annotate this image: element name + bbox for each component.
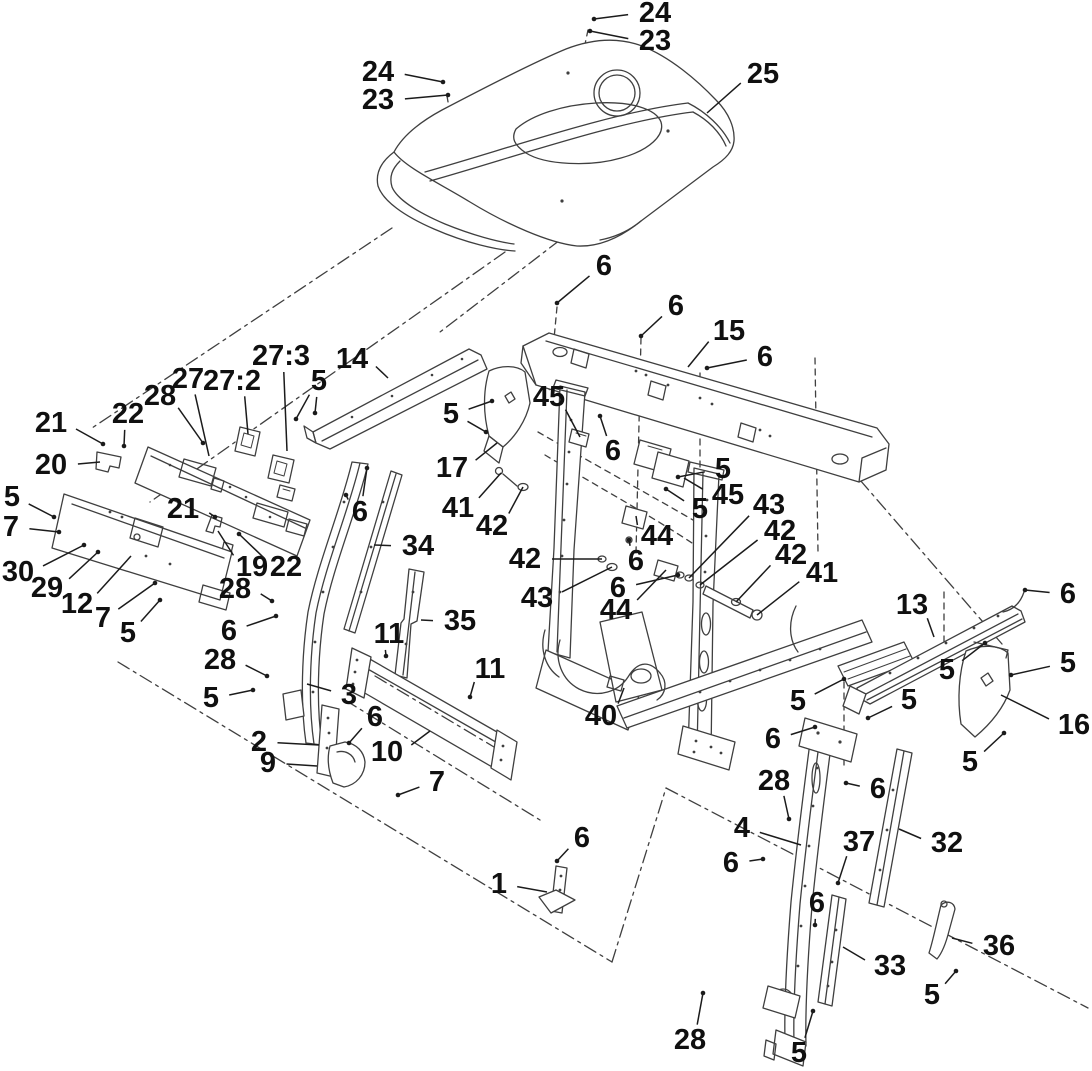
circle-detail bbox=[835, 929, 838, 932]
callout-label-21-40: 21 bbox=[167, 493, 199, 525]
callout-label-33-82: 33 bbox=[874, 950, 906, 982]
lever-outline bbox=[929, 902, 955, 959]
bracket-part-17 bbox=[485, 367, 531, 447]
leader-line-41 bbox=[479, 473, 501, 498]
callout-label-21-16: 21 bbox=[35, 407, 67, 439]
diagram-page: 2423242325661561427:352727:2282221204551… bbox=[0, 0, 1092, 1071]
leader-line-5 bbox=[315, 397, 317, 413]
fastener-dot-30 bbox=[82, 543, 87, 548]
leader-line-23 bbox=[405, 95, 448, 99]
callout-label-3-59: 3 bbox=[341, 679, 357, 711]
circle-detail bbox=[391, 395, 394, 398]
alignment-line bbox=[860, 480, 1002, 644]
fastener-dot-28 bbox=[701, 991, 706, 996]
callout-label-28-14: 28 bbox=[144, 380, 176, 412]
circle-detail bbox=[360, 591, 363, 594]
hood-hole bbox=[566, 71, 569, 74]
circle-detail bbox=[312, 691, 315, 694]
fastener-dot-28 bbox=[265, 674, 270, 679]
callout-label-6-66: 6 bbox=[574, 822, 590, 854]
fastener-dot-6 bbox=[844, 781, 849, 786]
callout-label-5-70: 5 bbox=[1060, 647, 1076, 679]
fastener-dot-6 bbox=[274, 614, 279, 619]
leader-line-23 bbox=[590, 31, 628, 39]
callout-label-17-20: 17 bbox=[436, 452, 468, 484]
circle-detail bbox=[704, 571, 707, 574]
fastener-dot-6 bbox=[813, 923, 818, 928]
callout-label-6-80: 6 bbox=[809, 887, 825, 919]
circle-detail bbox=[229, 486, 232, 489]
circle-detail bbox=[328, 732, 331, 735]
circle-detail bbox=[889, 672, 892, 675]
circle-detail bbox=[720, 752, 723, 755]
angle-bracket bbox=[652, 452, 689, 487]
callout-label-7-44: 7 bbox=[3, 511, 19, 543]
fastener-dot-28 bbox=[270, 599, 275, 604]
callout-label-25-4: 25 bbox=[747, 58, 779, 90]
circle-detail bbox=[500, 759, 503, 762]
fastener-dot-6 bbox=[1023, 588, 1028, 593]
circle-detail bbox=[693, 751, 696, 754]
circle-detail bbox=[804, 885, 807, 888]
callout-label-45-25: 45 bbox=[712, 479, 744, 511]
callout-label-11-58: 11 bbox=[475, 653, 506, 685]
circle-detail bbox=[816, 767, 819, 770]
circle-detail bbox=[559, 591, 562, 594]
hood-hole bbox=[560, 199, 563, 202]
callout-label-4-76: 4 bbox=[734, 812, 750, 844]
fastener-dot-6 bbox=[598, 414, 603, 419]
callout-label-36-81: 36 bbox=[983, 930, 1015, 962]
fastener-dot-5 bbox=[52, 515, 57, 520]
leader-line-5 bbox=[945, 971, 956, 984]
circle-detail bbox=[917, 657, 920, 660]
circle-detail bbox=[886, 829, 889, 832]
callout-label-16-72: 16 bbox=[1058, 709, 1090, 741]
leader-line-7 bbox=[29, 529, 59, 532]
leader-line-36 bbox=[952, 938, 972, 943]
fastener-dot-5 bbox=[811, 1009, 816, 1014]
leader-line-6 bbox=[600, 416, 607, 436]
circle-detail bbox=[502, 745, 505, 748]
callout-label-28-52: 28 bbox=[204, 644, 236, 676]
leader-line-6 bbox=[707, 360, 747, 368]
leader-line-35 bbox=[421, 620, 433, 621]
callout-label-37-77: 37 bbox=[843, 826, 875, 858]
circle-detail bbox=[635, 370, 638, 373]
circle-detail bbox=[566, 483, 569, 486]
circle-detail bbox=[827, 985, 830, 988]
circle-detail bbox=[812, 805, 815, 808]
circle-detail bbox=[997, 615, 1000, 618]
fastener-dot-6 bbox=[347, 741, 352, 746]
circle-detail bbox=[121, 516, 124, 519]
fastener-dot-21 bbox=[101, 442, 106, 447]
fastener-dot-6 bbox=[365, 466, 370, 471]
left-post bbox=[548, 386, 585, 658]
callout-label-42-22: 42 bbox=[476, 510, 508, 542]
fastener-dot-6 bbox=[555, 301, 560, 306]
circle-detail bbox=[816, 731, 819, 734]
fastener-dot-5 bbox=[251, 688, 256, 693]
callout-label-1-65: 1 bbox=[491, 868, 507, 900]
leader-line-13 bbox=[927, 618, 934, 637]
rail-part-14 bbox=[304, 349, 487, 449]
fastener-dot-5 bbox=[664, 487, 669, 492]
callout-label-22-42: 22 bbox=[270, 551, 302, 583]
fastener-dot-28 bbox=[787, 817, 792, 822]
leader-line-28 bbox=[246, 665, 267, 676]
fastener-dot-5 bbox=[842, 677, 847, 682]
callout-label-6-79: 6 bbox=[723, 847, 739, 879]
callout-label-5-26: 5 bbox=[692, 493, 708, 525]
leader-line-7 bbox=[118, 583, 155, 609]
bracket-parts-2-9 bbox=[317, 705, 365, 787]
callout-label-6-39: 6 bbox=[765, 723, 781, 755]
callout-label-40-37: 40 bbox=[585, 700, 617, 732]
fastener-dot-6 bbox=[344, 493, 349, 498]
circle-detail bbox=[145, 555, 148, 558]
leader-line-42 bbox=[736, 565, 771, 602]
fastener-dot-7 bbox=[153, 581, 158, 586]
callout-label-6-6: 6 bbox=[668, 290, 684, 322]
circle-detail bbox=[568, 451, 571, 454]
leader-line-27 bbox=[195, 394, 209, 456]
leader-line-6 bbox=[557, 849, 568, 861]
fastener-dot-29 bbox=[96, 550, 101, 555]
callout-label-6-68: 6 bbox=[1060, 578, 1076, 610]
leader-line-9 bbox=[287, 764, 318, 766]
circle-detail bbox=[695, 740, 698, 743]
leader-line-5 bbox=[666, 489, 684, 501]
circle-detail bbox=[322, 591, 325, 594]
leader-line-5 bbox=[141, 600, 160, 622]
circle-detail bbox=[879, 869, 882, 872]
callout-label-6-75: 6 bbox=[870, 773, 886, 805]
callout-label-42-33: 42 bbox=[509, 543, 541, 575]
leader-line-5 bbox=[468, 421, 487, 432]
callout-label-28-84: 28 bbox=[674, 1024, 706, 1056]
fastener-dot-5 bbox=[866, 716, 871, 721]
callout-label-5-73: 5 bbox=[962, 746, 978, 778]
bracket-outline bbox=[959, 646, 1010, 737]
callout-label-42-29: 42 bbox=[775, 539, 807, 571]
callout-label-22-15: 22 bbox=[112, 398, 144, 430]
leader-line-5 bbox=[815, 679, 844, 694]
fastener-dot-5 bbox=[954, 969, 959, 974]
callout-label-5-43: 5 bbox=[4, 481, 20, 513]
bracket-part-16 bbox=[959, 642, 1010, 737]
circle-detail bbox=[351, 416, 354, 419]
circle-detail bbox=[370, 546, 373, 549]
fastener-dot-11 bbox=[468, 695, 473, 700]
leader-line-7 bbox=[398, 787, 419, 795]
circle-detail bbox=[729, 680, 732, 683]
circle-detail bbox=[699, 691, 702, 694]
fastener-dot-23 bbox=[588, 29, 593, 34]
circle-detail bbox=[667, 384, 670, 387]
fastener-dot-6 bbox=[627, 538, 632, 543]
circle-detail bbox=[327, 717, 330, 720]
leader-line-27:3 bbox=[284, 372, 287, 451]
bracket-foot bbox=[539, 890, 575, 913]
decal-27-3 bbox=[268, 455, 294, 483]
cross-rail-fold bbox=[624, 632, 866, 718]
callout-label-5-69: 5 bbox=[939, 654, 955, 686]
leader-line-28 bbox=[697, 993, 703, 1025]
circle-detail bbox=[314, 641, 317, 644]
circle-detail bbox=[560, 875, 563, 878]
leader-line-6 bbox=[349, 728, 362, 743]
callout-label-5-19: 5 bbox=[443, 398, 459, 430]
circle-detail bbox=[699, 397, 702, 400]
circle-detail bbox=[769, 435, 772, 438]
leader-line-5 bbox=[229, 690, 253, 695]
circle-detail bbox=[892, 789, 895, 792]
circle-detail bbox=[109, 511, 112, 514]
leader-line-5 bbox=[868, 706, 892, 718]
leader-line-24 bbox=[405, 74, 443, 82]
circle-detail bbox=[356, 659, 359, 662]
callout-label-6-32: 6 bbox=[628, 545, 644, 577]
circle-detail bbox=[945, 642, 948, 645]
fastener-dot-24 bbox=[441, 80, 446, 85]
leader-line-15 bbox=[688, 342, 709, 367]
callout-label-23-1: 23 bbox=[639, 25, 671, 57]
circle-detail bbox=[563, 519, 566, 522]
circle-detail bbox=[645, 374, 648, 377]
circle-detail bbox=[332, 546, 335, 549]
leader-line-5 bbox=[1011, 666, 1050, 675]
alignment-line bbox=[440, 240, 560, 332]
circle-detail bbox=[245, 496, 248, 499]
callout-label-6-5: 6 bbox=[596, 250, 612, 282]
fastener-dot-5 bbox=[1009, 673, 1014, 678]
callout-label-45-18: 45 bbox=[533, 381, 565, 413]
callout-label-34-55: 34 bbox=[402, 530, 434, 562]
circle-detail bbox=[838, 740, 841, 743]
fastener-dot-5 bbox=[158, 598, 163, 603]
circle-detail bbox=[559, 889, 562, 892]
callout-label-11-57: 11 bbox=[374, 618, 405, 650]
leader-line-22 bbox=[124, 430, 125, 446]
callout-label-5-49: 5 bbox=[120, 617, 136, 649]
leader-line-33 bbox=[843, 947, 865, 960]
circle-detail bbox=[797, 965, 800, 968]
leader-line-11 bbox=[470, 682, 474, 697]
leader-line-14 bbox=[376, 367, 388, 379]
callout-label-5-71: 5 bbox=[901, 684, 917, 716]
leader-line-6 bbox=[557, 276, 590, 303]
callout-label-28-74: 28 bbox=[758, 765, 790, 797]
callout-label-35-56: 35 bbox=[444, 605, 476, 637]
bumper-block bbox=[283, 690, 304, 720]
callout-label-9-63: 9 bbox=[260, 747, 276, 779]
fastener-dot-5 bbox=[676, 475, 681, 480]
circle-detail bbox=[710, 746, 713, 749]
hood-outline bbox=[394, 40, 734, 246]
circle-detail bbox=[561, 555, 564, 558]
leader-line-34 bbox=[374, 545, 391, 546]
callout-label-13-67: 13 bbox=[896, 589, 928, 621]
callout-label-10-61: 10 bbox=[371, 736, 403, 768]
fastener-dot-28 bbox=[201, 441, 206, 446]
fastener-dot-6 bbox=[639, 334, 644, 339]
callout-label-5-85: 5 bbox=[791, 1037, 807, 1069]
fastener-dot-22 bbox=[122, 444, 127, 449]
callout-label-14-9: 14 bbox=[336, 343, 368, 375]
leader-line-21 bbox=[76, 429, 103, 444]
exploded-diagram-canvas: 2423242325661561427:352727:2282221204551… bbox=[0, 0, 1092, 1071]
decal-part-31 bbox=[277, 485, 295, 501]
callout-label-6-54: 6 bbox=[352, 496, 368, 528]
circle-detail bbox=[431, 374, 434, 377]
leader-line-32 bbox=[899, 829, 921, 839]
callout-label-12-47: 12 bbox=[61, 588, 93, 620]
fastener-dot-6 bbox=[555, 859, 560, 864]
circle-detail bbox=[412, 591, 415, 594]
circle-detail bbox=[759, 429, 762, 432]
circle-detail bbox=[461, 358, 464, 361]
circle-detail bbox=[808, 845, 811, 848]
circle-detail bbox=[405, 643, 408, 646]
fastener-dot-22 bbox=[237, 532, 242, 537]
circle-detail bbox=[759, 669, 762, 672]
callout-label-5-53: 5 bbox=[203, 682, 219, 714]
fastener-dot-21 bbox=[213, 515, 218, 520]
leader-line-24 bbox=[594, 15, 628, 19]
fastener-dot-6 bbox=[705, 366, 710, 371]
fastener-dot-23 bbox=[446, 93, 451, 98]
fastener-dot-5 bbox=[490, 399, 495, 404]
leader-line-42 bbox=[509, 487, 523, 514]
post-base-plate bbox=[678, 726, 735, 770]
leader-line-16 bbox=[1001, 695, 1049, 719]
callout-label-6-60: 6 bbox=[367, 701, 383, 733]
callout-label-29-46: 29 bbox=[31, 572, 63, 604]
circle-detail bbox=[819, 648, 822, 651]
circle-detail bbox=[711, 403, 714, 406]
callout-label-20-17: 20 bbox=[35, 449, 67, 481]
fastener-dot-5 bbox=[983, 641, 988, 646]
alignment-line bbox=[118, 662, 612, 962]
bolt-41-shaft bbox=[503, 474, 517, 486]
rail-end-tab bbox=[304, 426, 316, 443]
callout-label-7-48: 7 bbox=[95, 602, 111, 634]
callout-label-5-38: 5 bbox=[790, 685, 806, 717]
callout-label-44-31: 44 bbox=[641, 520, 673, 552]
fastener-dot-6 bbox=[761, 857, 766, 862]
callout-label-5-83: 5 bbox=[924, 979, 940, 1011]
leader-line-28 bbox=[784, 796, 789, 819]
fastener-dot-7 bbox=[57, 530, 62, 535]
leader-line-10 bbox=[411, 731, 430, 745]
leader-line-1 bbox=[517, 887, 547, 892]
fastener-dot-6 bbox=[676, 573, 681, 578]
fastener-dot-5 bbox=[294, 417, 299, 422]
bracket-part-1 bbox=[539, 866, 575, 913]
fastener-dot-11 bbox=[384, 654, 389, 659]
fastener-dot-37 bbox=[836, 881, 841, 886]
callout-label-43-34: 43 bbox=[521, 582, 553, 614]
fastener-dot-7 bbox=[396, 793, 401, 798]
callout-label-6-8: 6 bbox=[757, 341, 773, 373]
alignment-line bbox=[612, 788, 666, 962]
callout-label-27:2-13: 27:2 bbox=[203, 365, 261, 397]
circle-detail bbox=[326, 747, 329, 750]
callout-label-30-45: 30 bbox=[2, 556, 34, 588]
hood-part-25 bbox=[377, 40, 734, 251]
callout-label-41-30: 41 bbox=[806, 557, 838, 589]
circle-detail bbox=[354, 671, 357, 674]
hood-hole bbox=[666, 129, 669, 132]
fastener-dot-5 bbox=[1002, 731, 1007, 736]
leader-line-6 bbox=[641, 316, 662, 336]
leader-line-37 bbox=[838, 856, 847, 883]
callout-label-5-11: 5 bbox=[311, 365, 327, 397]
circle-detail bbox=[973, 627, 976, 630]
fastener-dot-5 bbox=[484, 430, 489, 435]
fastener-dot-24 bbox=[592, 17, 597, 22]
circle-detail bbox=[269, 516, 272, 519]
callout-label-41-21: 41 bbox=[442, 492, 474, 524]
circle-detail bbox=[343, 501, 346, 504]
circle-detail bbox=[705, 535, 708, 538]
leader-line-5 bbox=[29, 504, 54, 517]
fastener-dot-6 bbox=[813, 725, 818, 730]
leader-line-6 bbox=[247, 616, 276, 626]
callout-label-7-64: 7 bbox=[429, 766, 445, 798]
callout-label-15-7: 15 bbox=[713, 315, 745, 347]
callout-label-27-12: 27 bbox=[172, 363, 204, 395]
callout-label-6-23: 6 bbox=[605, 435, 621, 467]
circle-detail bbox=[789, 659, 792, 662]
circle-detail bbox=[169, 464, 172, 467]
callout-label-6-51: 6 bbox=[221, 615, 237, 647]
callout-label-28-50: 28 bbox=[219, 573, 251, 605]
callout-label-32-78: 32 bbox=[931, 827, 963, 859]
circle-detail bbox=[800, 925, 803, 928]
leader-line-41 bbox=[757, 582, 799, 615]
lever-part-36 bbox=[929, 901, 955, 959]
leader-line-5 bbox=[984, 733, 1004, 752]
circle-detail bbox=[831, 961, 834, 964]
bracket-9 bbox=[328, 742, 365, 787]
circle-detail bbox=[169, 563, 172, 566]
leader-line-4 bbox=[760, 832, 801, 845]
circle-detail bbox=[382, 501, 385, 504]
fastener-dot-5 bbox=[313, 411, 318, 416]
callout-label-23-3: 23 bbox=[362, 84, 394, 116]
leader-line-6 bbox=[1025, 590, 1050, 593]
callout-label-44-36: 44 bbox=[600, 594, 632, 626]
